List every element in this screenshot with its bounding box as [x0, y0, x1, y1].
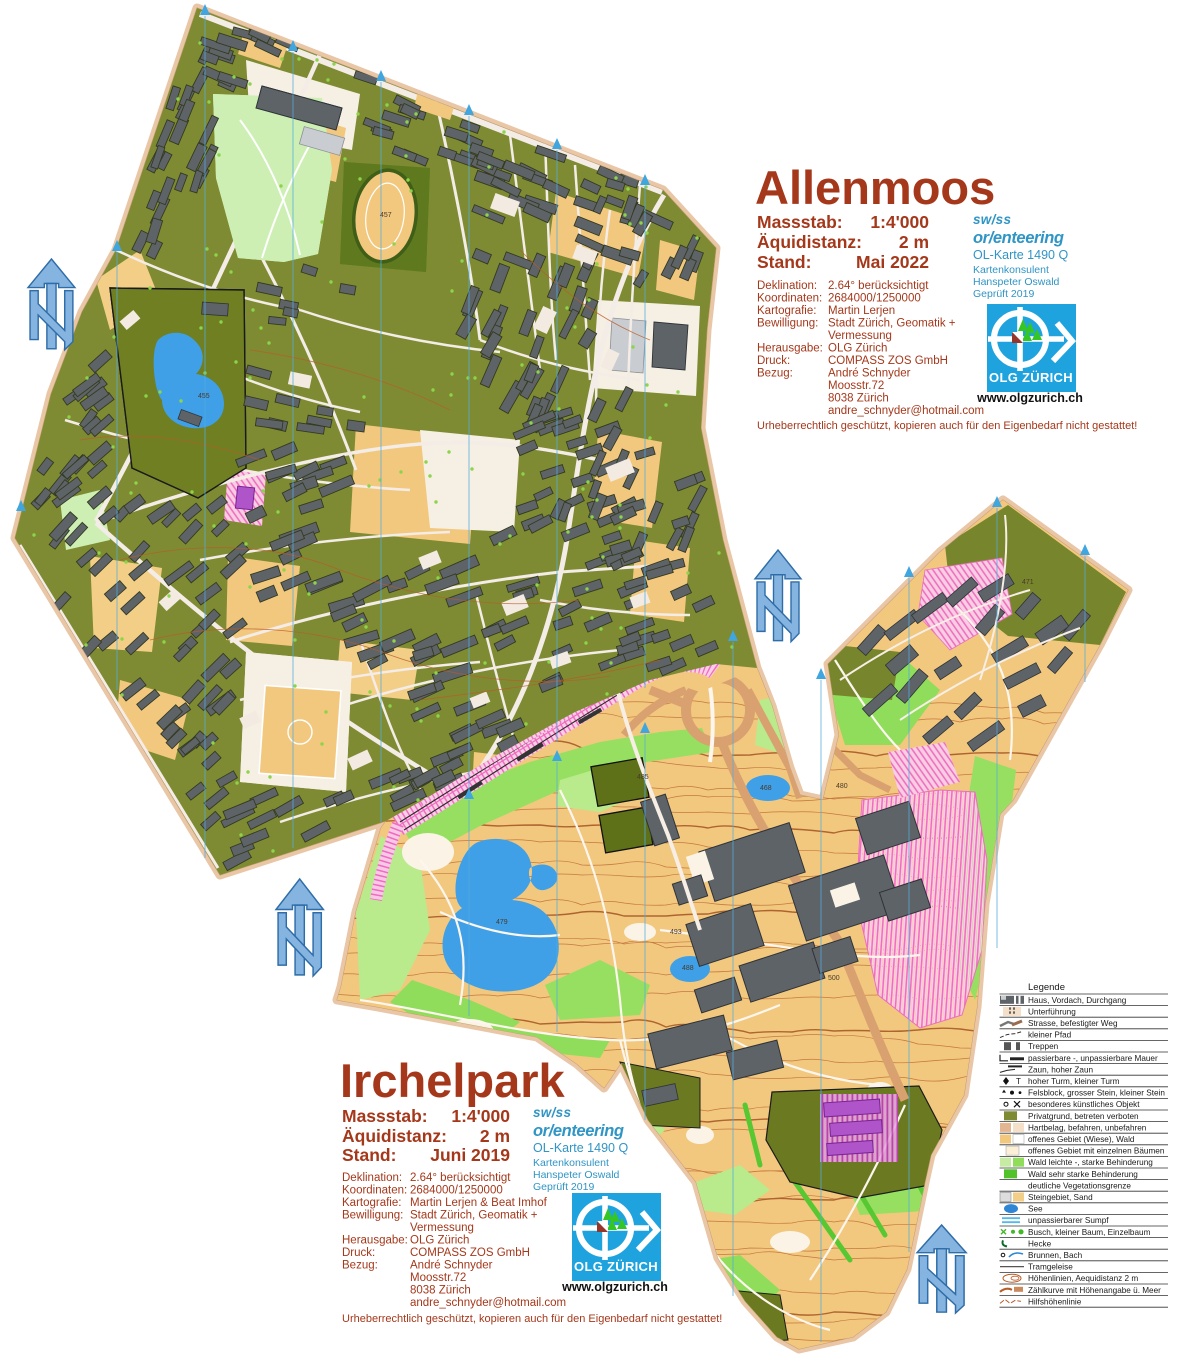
svg-text:Hilfshöhenlinie: Hilfshöhenlinie	[1028, 1297, 1082, 1306]
svg-text:or/enteering: or/enteering	[533, 1122, 624, 1140]
svg-text:www.olgzurich.ch: www.olgzurich.ch	[561, 1280, 668, 1294]
svg-text:Vermessung: Vermessung	[410, 1222, 474, 1234]
svg-text:Hanspeter Oswald: Hanspeter Oswald	[533, 1169, 620, 1181]
svg-text:Urheberrechtlich geschützt, ko: Urheberrechtlich geschützt, kopieren auc…	[342, 1313, 722, 1325]
svg-text:1:4'000: 1:4'000	[870, 212, 929, 232]
svg-text:Mai 2022: Mai 2022	[856, 252, 929, 272]
svg-text:Äquidistanz:: Äquidistanz:	[757, 232, 862, 252]
svg-text:kleiner Pfad: kleiner Pfad	[1028, 1031, 1072, 1040]
svg-text:Haus, Vordach, Durchgang: Haus, Vordach, Durchgang	[1028, 996, 1127, 1005]
svg-text:OLG ZÜRICH: OLG ZÜRICH	[989, 370, 1073, 385]
svg-text:Äquidistanz:: Äquidistanz:	[342, 1126, 447, 1146]
svg-text:Kartografie:: Kartografie:	[757, 305, 816, 317]
svg-text:Privatgrund, betreten verboten: Privatgrund, betreten verboten	[1028, 1112, 1139, 1121]
svg-text:Bezug:: Bezug:	[757, 368, 793, 380]
svg-text:Höhenlinien, Aequidistanz 2 m: Höhenlinien, Aequidistanz 2 m	[1028, 1274, 1138, 1283]
svg-text:479: 479	[496, 919, 508, 926]
svg-text:Deklination:: Deklination:	[757, 280, 817, 292]
svg-text:Hecke: Hecke	[1028, 1239, 1052, 1248]
svg-text:sw/ss: sw/ss	[973, 212, 1011, 227]
svg-text:493: 493	[670, 929, 682, 936]
svg-text:OLG ZÜRICH: OLG ZÜRICH	[574, 1259, 658, 1274]
svg-text:Juni 2019: Juni 2019	[430, 1145, 510, 1165]
svg-text:Geprüft 2019: Geprüft 2019	[533, 1181, 594, 1193]
svg-text:Stadt Zürich, Geomatik +: Stadt Zürich, Geomatik +	[828, 318, 956, 330]
svg-text:485: 485	[637, 774, 649, 781]
svg-text:André Schnyder: André Schnyder	[828, 368, 911, 380]
svg-text:457: 457	[380, 212, 392, 219]
svg-text:Herausgabe:: Herausgabe:	[342, 1235, 408, 1247]
svg-text:2 m: 2 m	[480, 1126, 510, 1146]
svg-text:468: 468	[760, 785, 772, 792]
svg-text:500: 500	[828, 975, 840, 982]
svg-text:Hartbelag, befahren, unbefahre: Hartbelag, befahren, unbefahren	[1028, 1123, 1147, 1132]
svg-text:8038 Zürich: 8038 Zürich	[410, 1285, 471, 1297]
svg-text:Massstab:: Massstab:	[342, 1106, 428, 1126]
svg-text:T: T	[1016, 1077, 1021, 1086]
svg-text:OLG Zürich: OLG Zürich	[410, 1235, 469, 1247]
svg-text:hoher Turm, kleiner Turm: hoher Turm, kleiner Turm	[1028, 1077, 1120, 1086]
svg-text:www.olgzurich.ch: www.olgzurich.ch	[976, 391, 1083, 405]
svg-text:COMPASS ZOS GmbH: COMPASS ZOS GmbH	[410, 1247, 530, 1259]
svg-text:Moosstr.72: Moosstr.72	[410, 1272, 466, 1284]
svg-text:1:4'000: 1:4'000	[451, 1106, 510, 1126]
svg-text:Moosstr.72: Moosstr.72	[828, 380, 884, 392]
svg-text:Bezug:: Bezug:	[342, 1260, 378, 1272]
svg-text:Busch, kleiner Baum, Einzelbau: Busch, kleiner Baum, Einzelbaum	[1028, 1228, 1151, 1237]
svg-text:Koordinaten:: Koordinaten:	[757, 293, 822, 305]
svg-text:Treppen: Treppen	[1028, 1042, 1059, 1051]
svg-text:See: See	[1028, 1205, 1043, 1214]
svg-text:Irchelpark: Irchelpark	[340, 1054, 566, 1107]
svg-text:Allenmoos: Allenmoos	[755, 161, 995, 214]
svg-text:488: 488	[682, 965, 694, 972]
svg-text:offenes Gebiet (Wiese), Wald: offenes Gebiet (Wiese), Wald	[1028, 1135, 1135, 1144]
svg-text:Bewilligung:: Bewilligung:	[757, 318, 818, 330]
svg-text:Druck:: Druck:	[757, 355, 790, 367]
svg-text:OL-Karte 1490 Q: OL-Karte 1490 Q	[973, 248, 1068, 262]
svg-text:Martin Lerjen & Beat Imhof: Martin Lerjen & Beat Imhof	[410, 1197, 548, 1209]
svg-text:or/enteering: or/enteering	[973, 229, 1064, 247]
svg-text:Kartenkonsulent: Kartenkonsulent	[533, 1157, 609, 1169]
svg-text:besonderes künstliches Objekt: besonderes künstliches Objekt	[1028, 1100, 1140, 1109]
svg-text:Zaun, hoher Zaun: Zaun, hoher Zaun	[1028, 1065, 1094, 1074]
svg-text:andre_schnyder@hotmail.com: andre_schnyder@hotmail.com	[410, 1297, 566, 1309]
svg-text:Martin Lerjen: Martin Lerjen	[828, 305, 895, 317]
svg-text:andre_schnyder@hotmail.com: andre_schnyder@hotmail.com	[828, 405, 984, 417]
svg-text:471: 471	[1022, 579, 1034, 586]
svg-text:Deklination:: Deklination:	[342, 1172, 402, 1184]
svg-text:Stand:: Stand:	[757, 252, 811, 272]
svg-text:Massstab:: Massstab:	[757, 212, 843, 232]
svg-text:offenes Gebiet mit einzelnen B: offenes Gebiet mit einzelnen Bäumen	[1028, 1147, 1165, 1156]
svg-text:Hanspeter Oswald: Hanspeter Oswald	[973, 276, 1060, 288]
svg-text:Felsblock, grosser Stein, klei: Felsblock, grosser Stein, kleiner Stein	[1028, 1089, 1165, 1098]
svg-text:passierbare -, unpassierbare M: passierbare -, unpassierbare Mauer	[1028, 1054, 1158, 1063]
svg-text:Geprüft 2019: Geprüft 2019	[973, 288, 1034, 300]
svg-text:2.64° berücksichtigt: 2.64° berücksichtigt	[828, 280, 929, 292]
svg-text:unpassierbarer Sumpf: unpassierbarer Sumpf	[1028, 1216, 1109, 1225]
svg-text:Tramgeleise: Tramgeleise	[1028, 1263, 1073, 1272]
svg-text:Stadt Zürich, Geomatik +: Stadt Zürich, Geomatik +	[410, 1210, 538, 1222]
svg-text:Urheberrechtlich geschützt, ko: Urheberrechtlich geschützt, kopieren auc…	[757, 420, 1137, 432]
svg-text:Bewilligung:: Bewilligung:	[342, 1210, 403, 1222]
svg-text:André Schnyder: André Schnyder	[410, 1260, 493, 1272]
svg-text:2 m: 2 m	[899, 232, 929, 252]
svg-text:Herausgabe:: Herausgabe:	[757, 343, 823, 355]
svg-text:OL-Karte 1490 Q: OL-Karte 1490 Q	[533, 1141, 628, 1155]
svg-text:sw/ss: sw/ss	[533, 1105, 571, 1120]
svg-text:Kartografie:: Kartografie:	[342, 1197, 401, 1209]
svg-text:2.64° berücksichtigt: 2.64° berücksichtigt	[410, 1172, 511, 1184]
svg-text:2684000/1250000: 2684000/1250000	[828, 293, 921, 305]
svg-text:Vermessung: Vermessung	[828, 330, 892, 342]
svg-text:Brunnen, Bach: Brunnen, Bach	[1028, 1251, 1083, 1260]
svg-text:Koordinaten:: Koordinaten:	[342, 1185, 407, 1197]
svg-text:Legende: Legende	[1028, 982, 1065, 993]
svg-text:Wald sehr starke Behinderung: Wald sehr starke Behinderung	[1028, 1170, 1138, 1179]
svg-text:Zählkurve mit Höhenangabe ü. M: Zählkurve mit Höhenangabe ü. Meer	[1028, 1286, 1161, 1295]
svg-text:8038 Zürich: 8038 Zürich	[828, 393, 889, 405]
svg-text:Unterführung: Unterführung	[1028, 1007, 1076, 1016]
svg-text:COMPASS ZOS GmbH: COMPASS ZOS GmbH	[828, 355, 948, 367]
svg-text:Druck:: Druck:	[342, 1247, 375, 1259]
svg-text:455: 455	[198, 393, 210, 400]
svg-text:Steingebiet, Sand: Steingebiet, Sand	[1028, 1193, 1093, 1202]
svg-text:OLG Zürich: OLG Zürich	[828, 343, 887, 355]
svg-text:Wald leichte -, starke Behinde: Wald leichte -, starke Behinderung	[1028, 1158, 1153, 1167]
svg-text:2684000/1250000: 2684000/1250000	[410, 1185, 503, 1197]
svg-text:Kartenkonsulent: Kartenkonsulent	[973, 264, 1049, 276]
svg-text:Stand:: Stand:	[342, 1145, 396, 1165]
svg-text:Strasse, befestigter Weg: Strasse, befestigter Weg	[1028, 1019, 1118, 1028]
svg-text:deutliche Vegetationsgrenze: deutliche Vegetationsgrenze	[1028, 1181, 1131, 1190]
svg-text:480: 480	[836, 783, 848, 790]
